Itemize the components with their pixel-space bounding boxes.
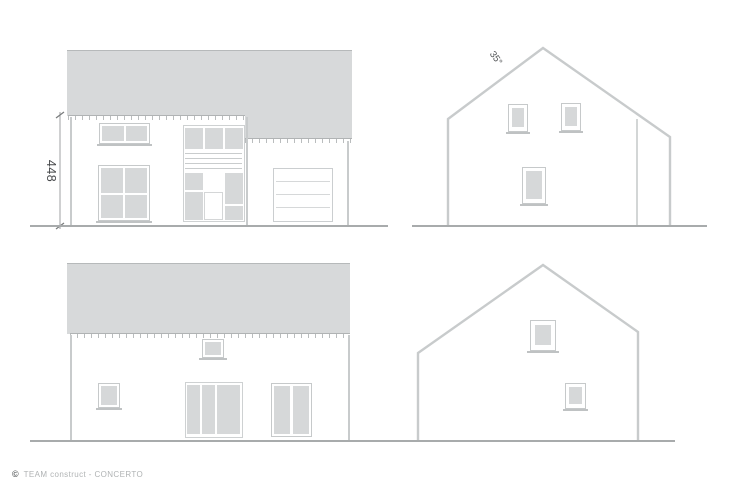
side-elevation-b <box>0 0 736 491</box>
elevation-sheet: 448 35° <box>0 0 736 491</box>
window-sill <box>527 351 559 353</box>
copyright-icon: © <box>12 470 19 479</box>
side-b-lower-window <box>565 383 586 409</box>
side-b-upper-window <box>530 320 556 351</box>
window-sill <box>563 409 588 411</box>
footer: © TEAM construct - CONCERTO <box>12 470 143 479</box>
copyright-text: TEAM construct - CONCERTO <box>24 470 144 479</box>
